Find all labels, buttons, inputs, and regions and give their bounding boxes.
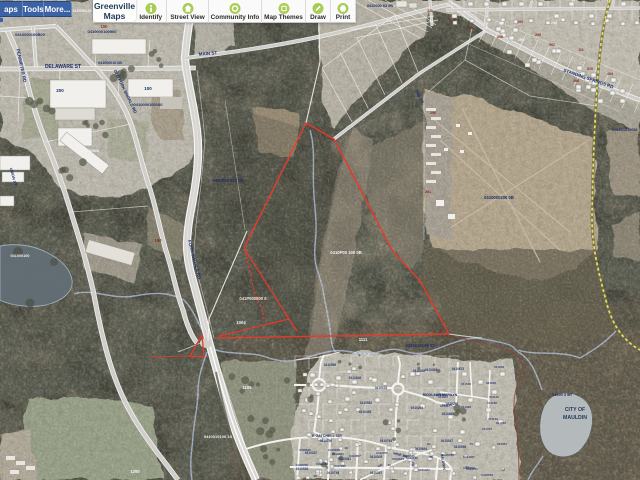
svg-text:16: 16	[387, 463, 391, 467]
svg-text:204: 204	[449, 18, 455, 22]
svg-text:0410928: 0410928	[413, 369, 426, 373]
svg-text:0410103: 0410103	[375, 386, 388, 390]
svg-text:0410648: 0410648	[349, 376, 362, 380]
svg-text:293: 293	[517, 20, 523, 24]
svg-text:041001010002: 041001010002	[612, 128, 637, 132]
svg-text:04100 4 5R: 04100 4 5R	[552, 393, 572, 397]
svg-text:206: 206	[467, 26, 473, 30]
svg-text:0410000100100: 0410000100100	[134, 102, 164, 107]
svg-text:0410287: 0410287	[370, 471, 383, 475]
svg-text:0410986: 0410986	[324, 363, 337, 367]
svg-text:0410000100: 0410000100	[73, 9, 92, 13]
svg-text:150: 150	[101, 24, 109, 29]
svg-text:041958: 041958	[494, 365, 504, 369]
svg-text:0410302: 0410302	[425, 368, 438, 372]
svg-text:0411427: 0411427	[418, 468, 430, 472]
svg-text:DELAWARE ST: DELAWARE ST	[45, 64, 81, 70]
svg-text:041667: 041667	[497, 442, 507, 446]
svg-text:041988: 041988	[461, 405, 471, 409]
svg-text:041536: 041536	[461, 382, 471, 386]
svg-text:041239: 041239	[486, 381, 496, 385]
svg-text:1290: 1290	[130, 469, 140, 474]
svg-text:0410305: 0410305	[370, 455, 383, 459]
svg-text:200: 200	[56, 88, 64, 93]
svg-text:0419139: 0419139	[316, 462, 328, 466]
svg-text:1105: 1105	[242, 385, 252, 390]
svg-text:0410000100B00: 0410000100B00	[15, 32, 45, 37]
svg-text:44: 44	[465, 465, 469, 469]
svg-text:295: 295	[535, 33, 541, 37]
svg-text:0410000100900: 0410000100900	[88, 29, 118, 34]
svg-text:0410010100 1S: 0410010100 1S	[204, 434, 233, 439]
svg-text:041000010 0B: 041000010 0B	[98, 61, 122, 65]
svg-text:150: 150	[155, 238, 163, 243]
svg-text:RIDGLAWN MARILYN: RIDGLAWN MARILYN	[423, 393, 458, 397]
svg-text:0410694: 0410694	[415, 447, 428, 451]
svg-text:MAULDIN: MAULDIN	[563, 415, 587, 421]
svg-text:0410P00 810 0B: 0410P00 810 0B	[212, 178, 243, 183]
svg-text:0412755: 0412755	[376, 451, 388, 455]
svg-text:0416670: 0416670	[328, 448, 340, 452]
svg-text:041376: 041376	[482, 427, 492, 431]
svg-text:0410665: 0410665	[442, 412, 455, 416]
svg-text:1111: 1111	[359, 337, 368, 342]
svg-text:0418610: 0418610	[299, 448, 311, 452]
svg-text:230: 230	[427, 9, 433, 13]
svg-text:71: 71	[411, 461, 415, 465]
svg-text:0410436: 0410436	[359, 410, 372, 414]
svg-text:0410673: 0410673	[452, 367, 465, 371]
svg-text:0410538: 0410538	[296, 467, 309, 471]
svg-text:0410562: 0410562	[360, 401, 373, 405]
svg-text:0410750: 0410750	[320, 439, 333, 443]
svg-text:75: 75	[335, 471, 339, 475]
svg-text:0414327: 0414327	[463, 455, 475, 459]
svg-text:404: 404	[607, 72, 613, 76]
svg-text:74: 74	[469, 442, 473, 446]
svg-text:CITY OF: CITY OF	[565, 407, 585, 413]
svg-text:0410547: 0410547	[441, 439, 454, 443]
svg-text:1004: 1004	[236, 320, 246, 325]
svg-text:041816: 041816	[496, 421, 506, 425]
svg-text:0410000200 0B: 0410000200 0B	[484, 195, 514, 200]
svg-text:291: 291	[425, 190, 431, 194]
svg-text:0417925: 0417925	[334, 464, 346, 468]
svg-text:041125: 041125	[489, 395, 499, 399]
svg-text:0419671: 0419671	[332, 452, 344, 456]
svg-text:91: 91	[427, 442, 431, 446]
svg-text:298: 298	[573, 79, 579, 83]
svg-text:290: 290	[551, 21, 557, 25]
svg-text:111: 111	[578, 48, 584, 52]
svg-text:0410010100 03: 0410010100 03	[405, 343, 435, 348]
svg-text:0410254: 0410254	[411, 406, 424, 410]
svg-text:0410000 63 0B: 0410000 63 0B	[367, 4, 393, 8]
svg-text:0410000300: 0410000300	[77, 148, 100, 153]
svg-text:295: 295	[518, 38, 524, 42]
svg-text:0410764: 0410764	[380, 439, 393, 443]
svg-text:041183: 041183	[487, 401, 497, 405]
svg-text:100: 100	[144, 86, 152, 91]
svg-text:296: 296	[430, 111, 436, 115]
svg-text:208: 208	[497, 35, 503, 39]
svg-text:E GATCHELL CIR: E GATCHELL CIR	[312, 434, 342, 438]
svg-text:510: 510	[587, 67, 593, 71]
svg-text:49: 49	[344, 446, 348, 450]
svg-text:041P000800 8: 041P000800 8	[239, 296, 267, 301]
svg-text:0418732: 0418732	[481, 473, 493, 477]
svg-text:0418796: 0418796	[296, 463, 308, 467]
svg-text:42: 42	[501, 468, 505, 472]
svg-text:501: 501	[549, 43, 555, 47]
svg-text:0410996: 0410996	[454, 445, 467, 449]
svg-text:041347: 041347	[440, 404, 450, 408]
svg-text:0413132: 0413132	[406, 456, 418, 460]
svg-text:0413857: 0413857	[349, 454, 361, 458]
svg-text:041000100: 041000100	[10, 254, 29, 258]
svg-text:41: 41	[379, 463, 383, 467]
svg-text:36: 36	[429, 455, 433, 459]
svg-text:0410P00 100 0B: 0410P00 100 0B	[330, 250, 361, 255]
svg-text:48: 48	[313, 474, 317, 478]
